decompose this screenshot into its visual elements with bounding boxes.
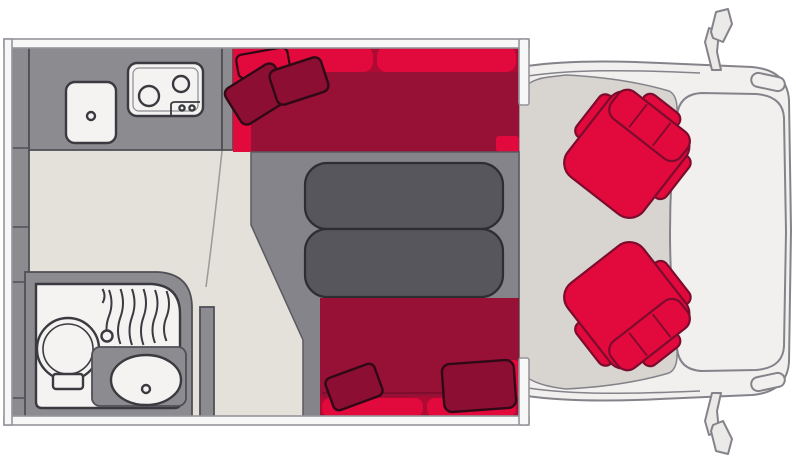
wing-mirror-top-icon: [705, 9, 732, 70]
wall-top: [4, 39, 529, 48]
floor-plan-canvas: [0, 0, 796, 466]
wall-cab-top-segment: [519, 39, 529, 105]
bathroom: [25, 272, 192, 418]
hob-knob-icon: [189, 105, 194, 110]
table-bottom-half: [305, 229, 503, 297]
washbasin: [111, 355, 181, 405]
wall-rear: [4, 39, 12, 425]
washbasin-drain-icon: [142, 385, 150, 393]
dinette-table: [305, 163, 503, 297]
front-bench-backrest-cushion: [377, 46, 516, 72]
wing-mirror-bottom-icon: [705, 393, 732, 454]
rear-bench: [320, 298, 519, 418]
front-bench-seat-edge: [496, 136, 519, 152]
side-wardrobe: [200, 307, 214, 418]
wall-cab-bottom-segment: [519, 358, 529, 425]
table-top-half: [305, 163, 503, 229]
hob-burner-large-icon: [139, 86, 159, 106]
front-bench: [222, 46, 519, 152]
hob-burner-small-icon: [173, 76, 189, 92]
toilet-hinge: [53, 374, 83, 389]
wall-bottom: [4, 416, 529, 425]
kitchen: [29, 46, 233, 150]
shower-faucet-icon: [102, 331, 113, 342]
motorhome-floor-plan: [0, 0, 796, 466]
hob-knob-icon: [179, 105, 184, 110]
sink-drain-icon: [87, 112, 95, 120]
toilet-bowl: [37, 318, 99, 380]
scatter-cushion: [441, 360, 516, 413]
